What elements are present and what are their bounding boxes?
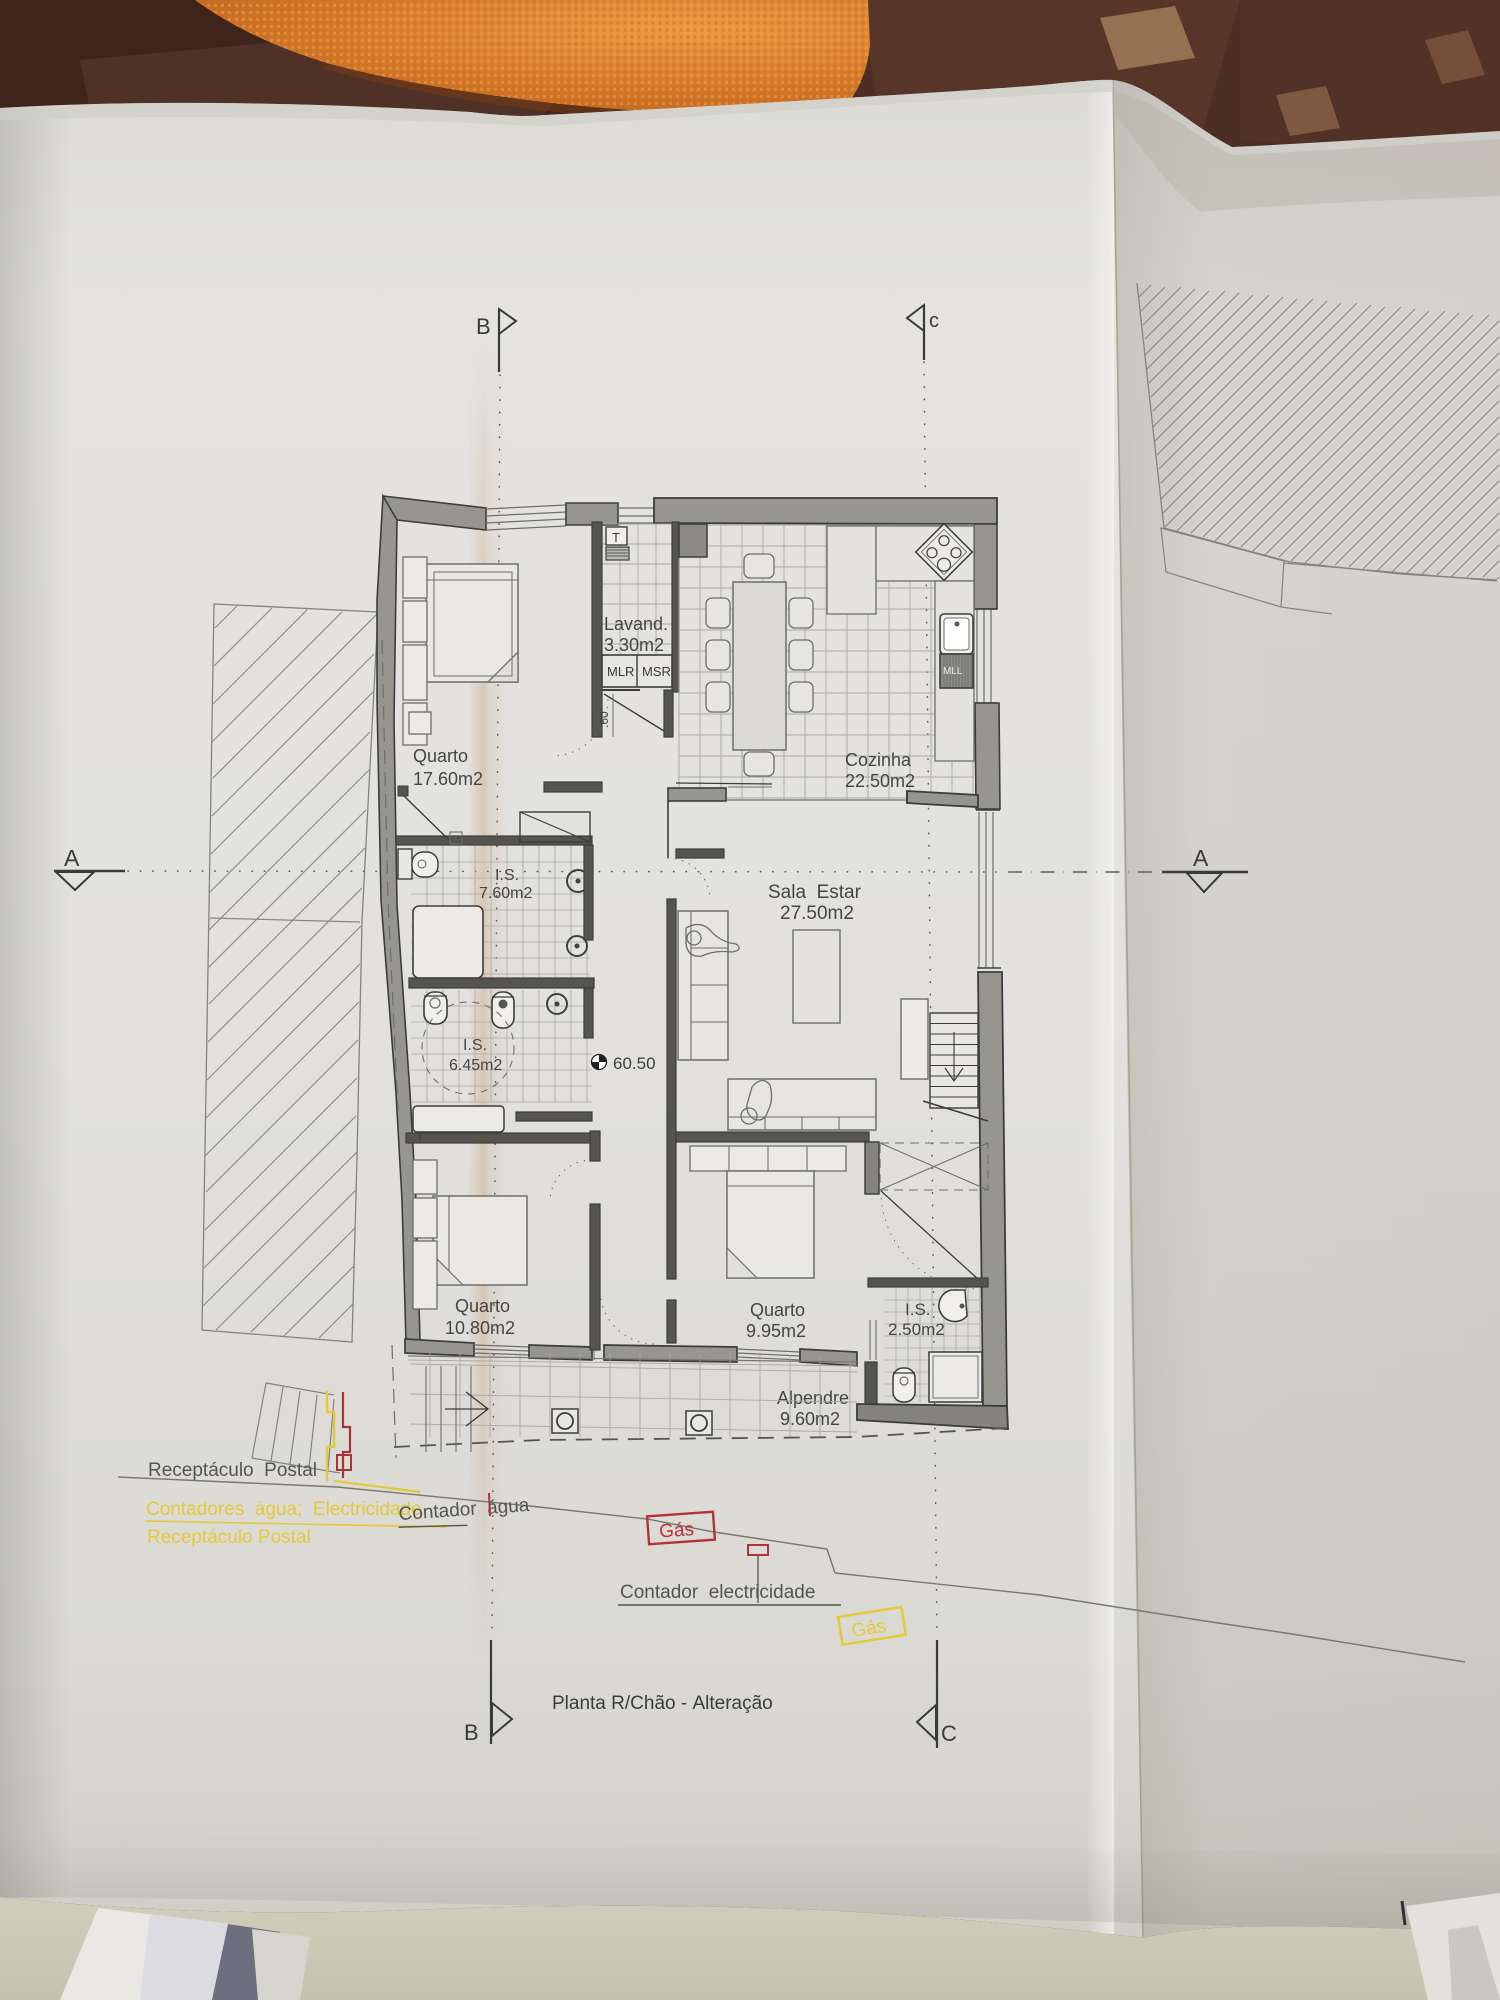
svg-text:c: c <box>929 310 939 332</box>
svg-text:9.95m2: 9.95m2 <box>746 1321 806 1341</box>
svg-text:7.60m2: 7.60m2 <box>479 885 532 902</box>
svg-text:MSR: MSR <box>642 664 671 679</box>
svg-text:6.45m2: 6.45m2 <box>449 1057 502 1074</box>
svg-text:Cozinha: Cozinha <box>845 750 912 770</box>
svg-text:I.S.: I.S. <box>463 1037 487 1054</box>
svg-text:MLL: MLL <box>943 666 963 677</box>
svg-text:22.50m2: 22.50m2 <box>845 771 915 791</box>
svg-text:I.S.: I.S. <box>905 1300 931 1319</box>
svg-text:Lavand.: Lavand. <box>604 614 668 634</box>
svg-text:.60: .60 <box>597 711 611 728</box>
svg-text:2.50m2: 2.50m2 <box>888 1320 945 1339</box>
svg-text:A: A <box>1193 845 1209 871</box>
svg-text:T: T <box>612 530 620 545</box>
svg-text:Sala Estar: Sala Estar <box>768 882 862 903</box>
svg-text:Quarto: Quarto <box>750 1300 805 1320</box>
svg-text:B: B <box>476 314 491 339</box>
svg-text:60.50: 60.50 <box>613 1054 656 1073</box>
svg-text:Quarto: Quarto <box>413 746 468 766</box>
svg-text:Gás: Gás <box>658 1519 694 1542</box>
svg-text:Planta R/Chão - Alteração: Planta R/Chão - Alteração <box>552 1693 773 1714</box>
svg-text:MLR: MLR <box>607 664 634 679</box>
svg-text:Contadores água; Electricida: Contadores água; Electricidade <box>146 1499 422 1520</box>
svg-text:Receptáculo Postal: Receptáculo Postal <box>148 1460 317 1481</box>
svg-text:B: B <box>464 1720 479 1745</box>
svg-text:27.50m2: 27.50m2 <box>780 903 854 924</box>
svg-text:3.30m2: 3.30m2 <box>604 635 664 655</box>
svg-text:Contador electricidade: Contador electricidade <box>620 1582 815 1603</box>
svg-text:Alpendre: Alpendre <box>777 1388 849 1408</box>
svg-text:Quarto: Quarto <box>455 1296 510 1316</box>
svg-text:I.S.: I.S. <box>495 867 519 884</box>
svg-text:Receptáculo Postal: Receptáculo Postal <box>147 1527 311 1548</box>
svg-text:C: C <box>941 1721 957 1746</box>
svg-text:9.60m2: 9.60m2 <box>780 1409 840 1429</box>
svg-text:17.60m2: 17.60m2 <box>413 769 483 789</box>
svg-text:10.80m2: 10.80m2 <box>445 1318 515 1338</box>
svg-text:A: A <box>64 845 80 871</box>
